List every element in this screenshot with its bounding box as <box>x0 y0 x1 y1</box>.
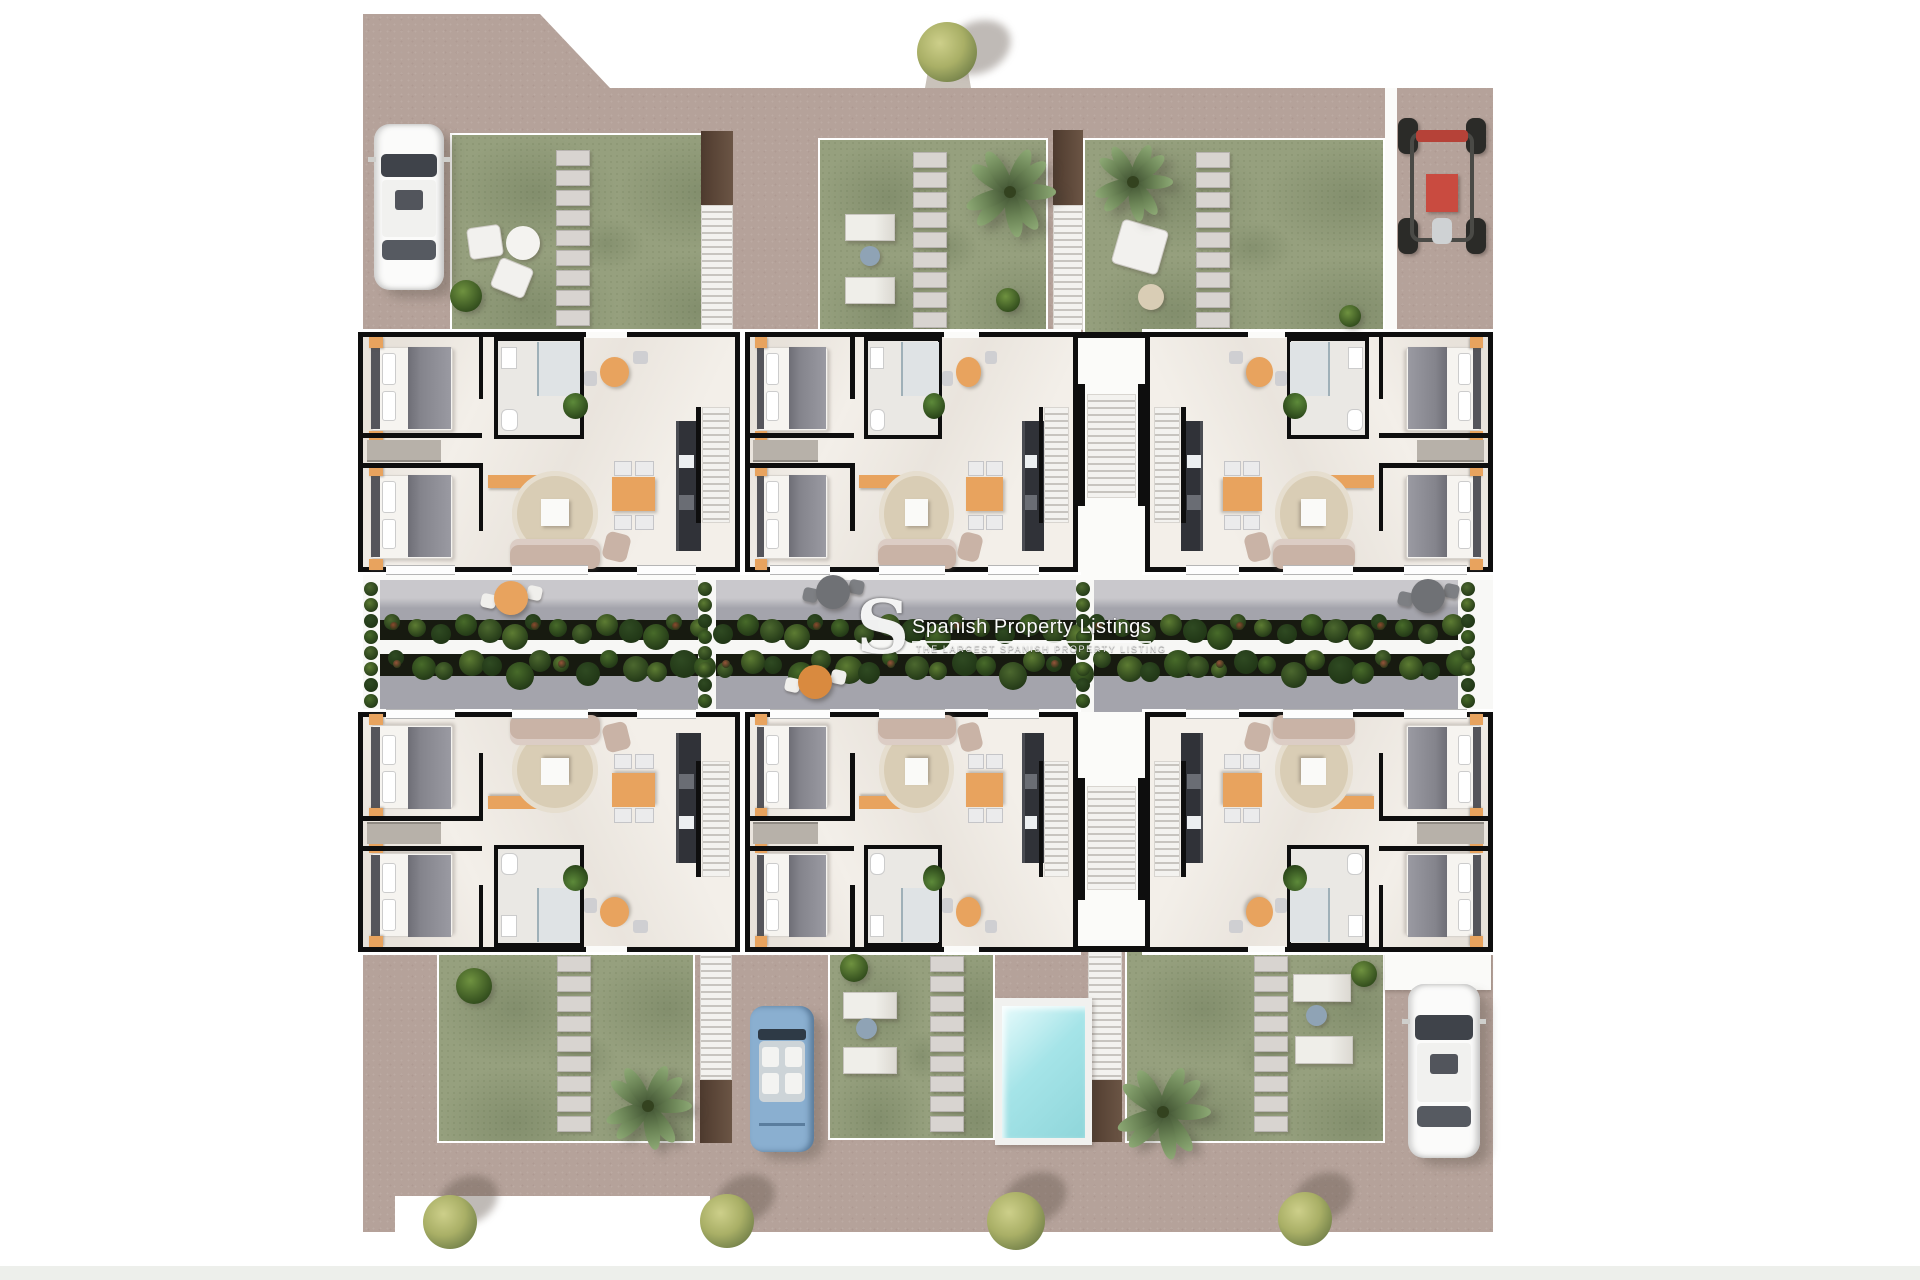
coffee-table <box>905 499 929 526</box>
planter-plant <box>435 662 453 680</box>
dining-chair <box>1224 461 1241 476</box>
footer-strip <box>0 1266 1920 1280</box>
terrace-window <box>879 709 945 719</box>
interior-wall <box>1379 337 1383 399</box>
unit-stairs <box>702 761 730 877</box>
stepping-stone <box>1254 1116 1288 1132</box>
palm-crown <box>1157 1106 1169 1118</box>
interior-wall <box>1379 816 1488 821</box>
terrace-window <box>988 565 1039 575</box>
interior-wall <box>1138 384 1145 506</box>
entry-door <box>586 946 627 952</box>
bistro-chair <box>830 669 848 686</box>
pillow <box>382 391 397 421</box>
planter-plant <box>698 614 712 628</box>
dining-chair <box>1243 808 1260 823</box>
stepping-stone <box>1254 1036 1288 1052</box>
bistro-chair <box>985 351 998 364</box>
wardrobe <box>367 822 441 844</box>
planter-plant <box>1216 660 1224 668</box>
dining-chair <box>986 515 1002 530</box>
shower <box>1290 342 1329 396</box>
stepping-stone <box>930 1056 964 1072</box>
bistro-chair <box>942 898 953 913</box>
planter-plant <box>412 656 436 680</box>
toilet <box>1347 853 1362 875</box>
dining-chair <box>986 808 1002 823</box>
shower <box>537 888 580 942</box>
planter-plant <box>576 662 600 686</box>
pillow <box>382 863 397 893</box>
palm-tree <box>964 146 1056 238</box>
planter-plant <box>364 678 378 692</box>
interior-wall <box>363 433 482 438</box>
stepping-stone <box>1196 212 1230 228</box>
nightstand <box>369 714 383 725</box>
dining-chair <box>1224 515 1241 530</box>
palm-tree <box>1115 1064 1211 1160</box>
dining-table <box>966 477 1003 511</box>
planter-plant <box>813 622 821 630</box>
planter-plant <box>698 678 712 692</box>
stepping-stone <box>557 1116 591 1132</box>
stair-landing <box>1053 130 1083 205</box>
sun-lounger <box>845 214 895 241</box>
stepping-stone <box>930 976 964 992</box>
stepping-stone <box>557 1076 591 1092</box>
planter-plant <box>1461 646 1475 660</box>
coffee-table <box>1301 499 1326 526</box>
watermark: S Spanish Property Listings THE LARGEST … <box>856 596 1196 670</box>
dining-chair <box>635 754 654 769</box>
bathroom-sink <box>870 915 884 937</box>
wardrobe <box>753 822 818 844</box>
pillow <box>766 391 779 421</box>
planter-plant <box>1348 624 1374 650</box>
bed-blanket <box>408 855 451 937</box>
planter-plant <box>529 650 551 672</box>
planter-plant <box>1324 619 1348 643</box>
side-mirror <box>1478 1019 1486 1024</box>
stepping-stone <box>556 310 590 326</box>
stepping-stone <box>930 956 964 972</box>
terrace-window <box>1186 709 1239 719</box>
planter-plant <box>502 624 528 650</box>
planter-plant <box>1258 656 1276 674</box>
planter-plant <box>1395 619 1413 637</box>
palm-crown <box>1127 176 1139 188</box>
headboard <box>757 475 765 557</box>
pillow <box>382 481 397 513</box>
headboard <box>1473 475 1481 557</box>
planter-plant <box>643 624 669 650</box>
planter-plant <box>431 624 451 644</box>
nightstand <box>1470 936 1482 947</box>
stepping-stone <box>913 272 947 288</box>
bathroom-sink <box>501 915 517 937</box>
watermark-logo: S <box>856 598 909 658</box>
terrace-window <box>1283 565 1352 575</box>
entry-door <box>1248 946 1285 952</box>
pillow <box>1458 735 1472 765</box>
sunroof <box>1430 1054 1459 1075</box>
shower <box>901 888 939 942</box>
planter-plant <box>364 582 378 596</box>
bed-blanket <box>789 347 826 429</box>
pillow <box>1458 519 1472 549</box>
apartment-unit <box>358 332 740 572</box>
bistro-table <box>956 357 982 387</box>
red-buggy <box>1398 112 1486 264</box>
dining-table <box>612 477 655 511</box>
stepping-stone <box>1196 172 1230 188</box>
planter-plant <box>506 662 534 690</box>
apartment-unit <box>1145 712 1493 952</box>
stepping-stone <box>930 1096 964 1112</box>
armchair <box>1243 721 1272 754</box>
headboard <box>371 347 380 429</box>
stepping-stone <box>913 212 947 228</box>
toilet <box>1347 409 1362 431</box>
buggy-seat <box>1432 218 1452 244</box>
palm-crown <box>642 1100 654 1112</box>
planter-plant <box>364 598 378 612</box>
stepping-stone <box>913 292 947 308</box>
stepping-stone <box>1254 976 1288 992</box>
stepping-stone <box>930 1036 964 1052</box>
stairwell <box>1078 332 1145 572</box>
unit-stairs <box>1154 761 1180 877</box>
interior-wall <box>479 885 484 947</box>
kitchen-sink <box>1025 816 1038 829</box>
dining-chair <box>614 515 633 530</box>
stepping-stone <box>556 230 590 246</box>
bed-blanket <box>408 727 451 809</box>
interior-wall <box>479 753 484 821</box>
dining-chair <box>635 515 654 530</box>
headboard <box>371 727 380 809</box>
staircase <box>1088 950 1122 1080</box>
interior-wall <box>750 816 854 821</box>
bed-blanket <box>789 727 826 809</box>
stepping-stone <box>557 1036 591 1052</box>
windshield <box>381 154 437 177</box>
coffee-table <box>541 499 568 526</box>
interior-wall <box>850 337 854 399</box>
planter-plant <box>1377 622 1385 630</box>
bistro-table <box>1246 357 1273 387</box>
planter-plant <box>764 656 782 674</box>
terrace-window <box>512 709 588 719</box>
tree <box>917 22 977 82</box>
interior-wall <box>750 463 854 468</box>
nightstand <box>755 936 767 947</box>
bistro-chair <box>1229 920 1242 933</box>
staircase <box>700 950 732 1080</box>
side-mirror <box>368 157 376 162</box>
toilet <box>870 853 885 875</box>
pillow <box>766 735 779 765</box>
pillow <box>1458 899 1472 931</box>
planter-plant <box>1461 630 1475 644</box>
garden-plant <box>996 288 1020 312</box>
dining-chair <box>1224 808 1241 823</box>
nightstand <box>369 559 383 570</box>
dining-chair <box>614 461 633 476</box>
bed-blanket <box>1408 475 1447 557</box>
terrace-window <box>1404 709 1466 719</box>
sun-lounger <box>843 1047 897 1074</box>
entry-door <box>944 946 980 952</box>
toilet <box>501 409 518 431</box>
coffee-table <box>541 758 568 785</box>
planter-plant <box>390 622 398 630</box>
stepping-stone <box>557 1096 591 1112</box>
pillow <box>382 735 397 765</box>
interior-wall <box>850 753 854 821</box>
dining-table <box>1223 477 1262 511</box>
planter-plant <box>698 662 712 676</box>
watermark-title: Spanish Property Listings <box>912 616 1151 643</box>
wardrobe <box>1417 822 1485 844</box>
unit-stairs <box>1154 407 1180 523</box>
planter-plant <box>1305 650 1325 670</box>
pool-water <box>1002 1006 1085 1138</box>
kitchen-sink <box>679 816 694 829</box>
potted-plant <box>1283 393 1306 419</box>
apartment-row-bottom <box>358 712 1493 952</box>
planter-plant <box>531 622 539 630</box>
pillow <box>382 519 397 549</box>
planter-plant <box>722 660 730 668</box>
stepping-stone <box>557 956 591 972</box>
stepping-stone <box>1196 252 1230 268</box>
planter-plant <box>364 614 378 628</box>
pillow <box>382 353 397 385</box>
dining-table <box>1223 773 1262 807</box>
shower <box>537 342 580 396</box>
pillow <box>1458 863 1472 893</box>
armchair <box>1243 531 1272 564</box>
interior-wall <box>363 463 482 468</box>
planter-plant <box>623 656 649 682</box>
dining-chair <box>968 515 984 530</box>
dining-chair <box>1224 754 1241 769</box>
bistro-chair <box>985 920 998 933</box>
sun-lounger <box>845 277 895 304</box>
interior-wall <box>363 816 482 821</box>
interior-wall <box>1379 885 1383 947</box>
planter-plant <box>558 660 566 668</box>
planter-plant <box>1076 694 1090 708</box>
interior-wall <box>750 433 854 438</box>
terrace-window <box>770 709 830 719</box>
bistro-table <box>1411 579 1445 613</box>
planter-plant <box>672 622 680 630</box>
planter-plant <box>698 598 712 612</box>
stepping-stone <box>557 1016 591 1032</box>
stepping-stone <box>1196 152 1230 168</box>
planter-plant <box>737 614 759 636</box>
planter-plant <box>1418 624 1438 644</box>
interior-wall <box>1078 778 1085 900</box>
stepping-stone <box>556 270 590 286</box>
dining-chair <box>968 808 984 823</box>
terrace-window <box>770 565 830 575</box>
planter-plant <box>1352 662 1374 684</box>
headboard <box>371 475 380 557</box>
bistro-table <box>1246 897 1273 927</box>
interior-wall <box>479 463 484 531</box>
planter-plant <box>1461 614 1475 628</box>
unit-stairs <box>702 407 730 523</box>
bistro-chair <box>633 351 648 364</box>
planter-plant <box>1461 598 1475 612</box>
terrace-window <box>637 565 696 575</box>
bistro-table <box>816 575 850 609</box>
bistro-chair <box>1275 898 1287 913</box>
dining-chair <box>986 754 1002 769</box>
bistro-table <box>600 897 629 927</box>
interior-wall <box>1379 463 1383 531</box>
nightstand <box>369 936 383 947</box>
rear-window <box>382 240 435 260</box>
outdoor-table <box>856 1018 877 1039</box>
planter-plant <box>549 619 567 637</box>
planter-plant <box>600 650 618 668</box>
unit-stairs <box>1044 761 1069 877</box>
tree <box>700 1194 754 1248</box>
bistro-chair <box>526 585 544 602</box>
entry-door <box>1248 332 1285 338</box>
interior-wall <box>696 761 701 877</box>
unit-stairs <box>1044 407 1069 523</box>
sun-lounger <box>1293 974 1351 1002</box>
bed-blanket <box>1408 855 1447 937</box>
bed-blanket <box>1408 727 1447 809</box>
dining-chair <box>986 461 1002 476</box>
outdoor-table <box>1138 284 1164 310</box>
dining-table <box>966 773 1003 807</box>
bistro-chair <box>1229 351 1242 364</box>
planter-plant <box>1236 622 1244 630</box>
potted-plant <box>923 865 945 891</box>
stepping-stone <box>913 152 947 168</box>
garden-plant <box>840 954 868 982</box>
planter-plant <box>478 619 502 643</box>
dining-chair <box>635 808 654 823</box>
toilet <box>870 409 885 431</box>
planter-plant <box>1461 582 1475 596</box>
planter-plant <box>1442 614 1464 636</box>
coffee-table <box>1301 758 1326 785</box>
staircase <box>701 205 733 345</box>
planter-plant <box>1301 614 1323 636</box>
planter-plant <box>572 624 592 644</box>
rear-window <box>1417 1106 1472 1127</box>
planter-plant <box>760 619 784 643</box>
planter-plant <box>459 650 485 676</box>
shower <box>1290 888 1329 942</box>
car-seat <box>785 1073 803 1093</box>
stair-landing <box>701 131 733 205</box>
planter-plant <box>1277 624 1297 644</box>
interior-wall <box>363 846 482 851</box>
garden-plant <box>1339 305 1361 327</box>
interior-wall <box>1181 761 1185 877</box>
divider-wall <box>1385 88 1397 332</box>
stepping-stone <box>913 192 947 208</box>
planter-plant <box>1076 678 1090 692</box>
stepping-stone <box>1196 292 1230 308</box>
pillow <box>1458 353 1472 385</box>
terrace-window <box>637 709 696 719</box>
nightstand <box>755 714 767 725</box>
planter-plant <box>1422 662 1440 680</box>
headboard <box>757 727 765 809</box>
headboard <box>1473 347 1481 429</box>
pillow <box>1458 771 1472 803</box>
nightstand <box>1470 559 1482 570</box>
stepping-stone <box>930 1116 964 1132</box>
nightstand <box>369 337 383 348</box>
windshield <box>1415 1015 1473 1039</box>
kitchen-sink <box>679 455 694 468</box>
dining-chair <box>635 461 654 476</box>
planter-plant <box>596 614 618 636</box>
stairwell-stairs <box>1087 394 1136 498</box>
entry-door <box>944 332 980 338</box>
watermark-subtitle: THE LARGEST SPANISH PROPERTY LISTING <box>916 644 1167 654</box>
stepping-stone <box>913 312 947 328</box>
stepping-stone <box>913 252 947 268</box>
stepping-stone <box>556 290 590 306</box>
pillow <box>766 771 779 803</box>
apartment-unit <box>745 712 1078 952</box>
stepping-stone <box>1196 232 1230 248</box>
interior-wall <box>1078 946 1145 952</box>
side-mirror <box>1402 1019 1410 1024</box>
stairwell-stairs <box>1087 786 1136 890</box>
kitchen-sink <box>1187 455 1200 468</box>
bed-blanket <box>789 475 826 557</box>
toilet <box>501 853 518 875</box>
planter-plant <box>482 656 502 676</box>
headboard <box>757 347 765 429</box>
dining-chair <box>614 808 633 823</box>
stepping-stone <box>556 150 590 166</box>
kitchen-sink <box>1025 455 1038 468</box>
interior-wall <box>750 846 854 851</box>
bistro-table <box>956 897 982 927</box>
windshield <box>758 1029 807 1039</box>
stepping-stone <box>913 232 947 248</box>
planter-plant <box>1281 662 1307 688</box>
stair-landing <box>700 1080 732 1143</box>
entry-door <box>586 332 627 338</box>
sofa <box>510 715 600 745</box>
interior-wall <box>1078 384 1085 506</box>
interior-wall <box>1379 433 1488 438</box>
palm-crown <box>1004 186 1016 198</box>
stepping-stone <box>1254 996 1288 1012</box>
bathroom-sink <box>1348 915 1362 937</box>
planter-plant <box>1461 662 1475 676</box>
terrace-window <box>512 565 588 575</box>
bistro-table <box>798 665 832 699</box>
armchair <box>601 530 632 563</box>
sofa <box>1273 715 1355 745</box>
